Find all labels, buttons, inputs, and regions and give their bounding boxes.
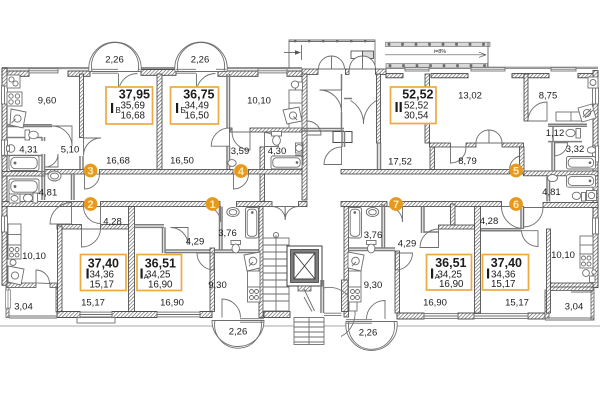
svg-text:9,30: 9,30 bbox=[208, 280, 227, 291]
svg-text:10,10: 10,10 bbox=[247, 96, 271, 107]
svg-text:9,30: 9,30 bbox=[364, 280, 383, 291]
svg-text:16,90: 16,90 bbox=[423, 298, 447, 309]
svg-text:4,29: 4,29 bbox=[186, 237, 205, 248]
svg-text:4,81: 4,81 bbox=[542, 187, 561, 198]
svg-text:10,10: 10,10 bbox=[551, 250, 575, 261]
svg-text:4,29: 4,29 bbox=[398, 239, 417, 250]
svg-text:7: 7 bbox=[393, 199, 399, 211]
svg-text:2,26: 2,26 bbox=[191, 55, 210, 66]
svg-text:30,54: 30,54 bbox=[404, 110, 429, 121]
svg-text:37,40: 37,40 bbox=[491, 256, 522, 270]
svg-text:4,81: 4,81 bbox=[39, 188, 58, 199]
svg-text:3: 3 bbox=[87, 165, 93, 177]
svg-text:4,30: 4,30 bbox=[268, 146, 287, 157]
svg-text:16,68: 16,68 bbox=[106, 156, 130, 167]
svg-text:17,52: 17,52 bbox=[388, 157, 412, 168]
svg-text:I: I bbox=[175, 100, 179, 117]
svg-text:16,50: 16,50 bbox=[184, 110, 209, 121]
svg-text:4,28: 4,28 bbox=[480, 216, 499, 227]
svg-text:5,10: 5,10 bbox=[61, 145, 80, 156]
svg-text:1,12: 1,12 bbox=[546, 128, 565, 139]
svg-text:i=8%: i=8% bbox=[434, 49, 446, 55]
svg-text:15,17: 15,17 bbox=[491, 279, 516, 290]
svg-text:16,90: 16,90 bbox=[148, 279, 173, 290]
svg-text:3,76: 3,76 bbox=[218, 228, 237, 239]
svg-text:2,26: 2,26 bbox=[105, 55, 124, 66]
svg-text:4,31: 4,31 bbox=[19, 144, 38, 155]
svg-text:3,32: 3,32 bbox=[566, 144, 585, 155]
svg-text:II: II bbox=[395, 99, 403, 116]
svg-text:16,90: 16,90 bbox=[160, 298, 184, 309]
svg-text:10,10: 10,10 bbox=[22, 251, 46, 262]
svg-text:2: 2 bbox=[87, 199, 93, 211]
svg-text:3,04: 3,04 bbox=[565, 302, 584, 313]
svg-text:I: I bbox=[110, 100, 114, 117]
svg-text:1: 1 bbox=[209, 199, 215, 211]
svg-text:15,17: 15,17 bbox=[81, 298, 105, 309]
svg-text:3,04: 3,04 bbox=[14, 302, 33, 313]
svg-text:9,60: 9,60 bbox=[38, 96, 57, 107]
svg-text:I: I bbox=[486, 265, 490, 282]
svg-text:2,26: 2,26 bbox=[229, 327, 248, 338]
svg-text:16,68: 16,68 bbox=[120, 110, 145, 121]
svg-text:2,26: 2,26 bbox=[359, 328, 378, 339]
svg-text:8,75: 8,75 bbox=[539, 90, 558, 101]
svg-text:13,02: 13,02 bbox=[458, 91, 482, 102]
svg-text:3,59: 3,59 bbox=[231, 146, 250, 157]
svg-text:I: I bbox=[430, 265, 434, 282]
svg-text:15,17: 15,17 bbox=[505, 298, 529, 309]
svg-text:4,28: 4,28 bbox=[103, 216, 122, 227]
svg-text:4: 4 bbox=[238, 166, 245, 178]
svg-text:36,51: 36,51 bbox=[435, 256, 466, 270]
svg-text:6: 6 bbox=[513, 199, 519, 211]
svg-text:8,79: 8,79 bbox=[458, 156, 477, 167]
svg-text:3,76: 3,76 bbox=[364, 230, 383, 241]
svg-text:15,17: 15,17 bbox=[89, 279, 114, 290]
svg-text:5: 5 bbox=[513, 165, 519, 177]
svg-text:16,50: 16,50 bbox=[170, 156, 194, 167]
svg-text:16,90: 16,90 bbox=[439, 279, 464, 290]
